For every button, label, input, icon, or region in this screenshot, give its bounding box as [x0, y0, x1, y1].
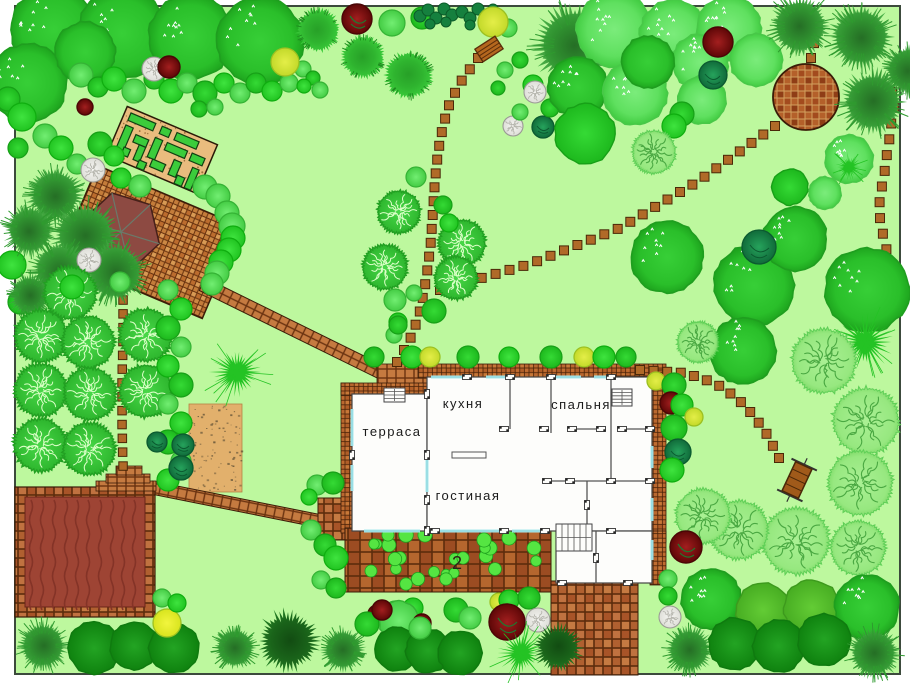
svg-text:кухня: кухня: [443, 396, 484, 411]
svg-text:2: 2: [452, 553, 462, 573]
svg-text:гостиная: гостиная: [436, 488, 501, 503]
svg-text:спальня: спальня: [551, 397, 611, 412]
svg-text:терраса: терраса: [363, 424, 422, 439]
